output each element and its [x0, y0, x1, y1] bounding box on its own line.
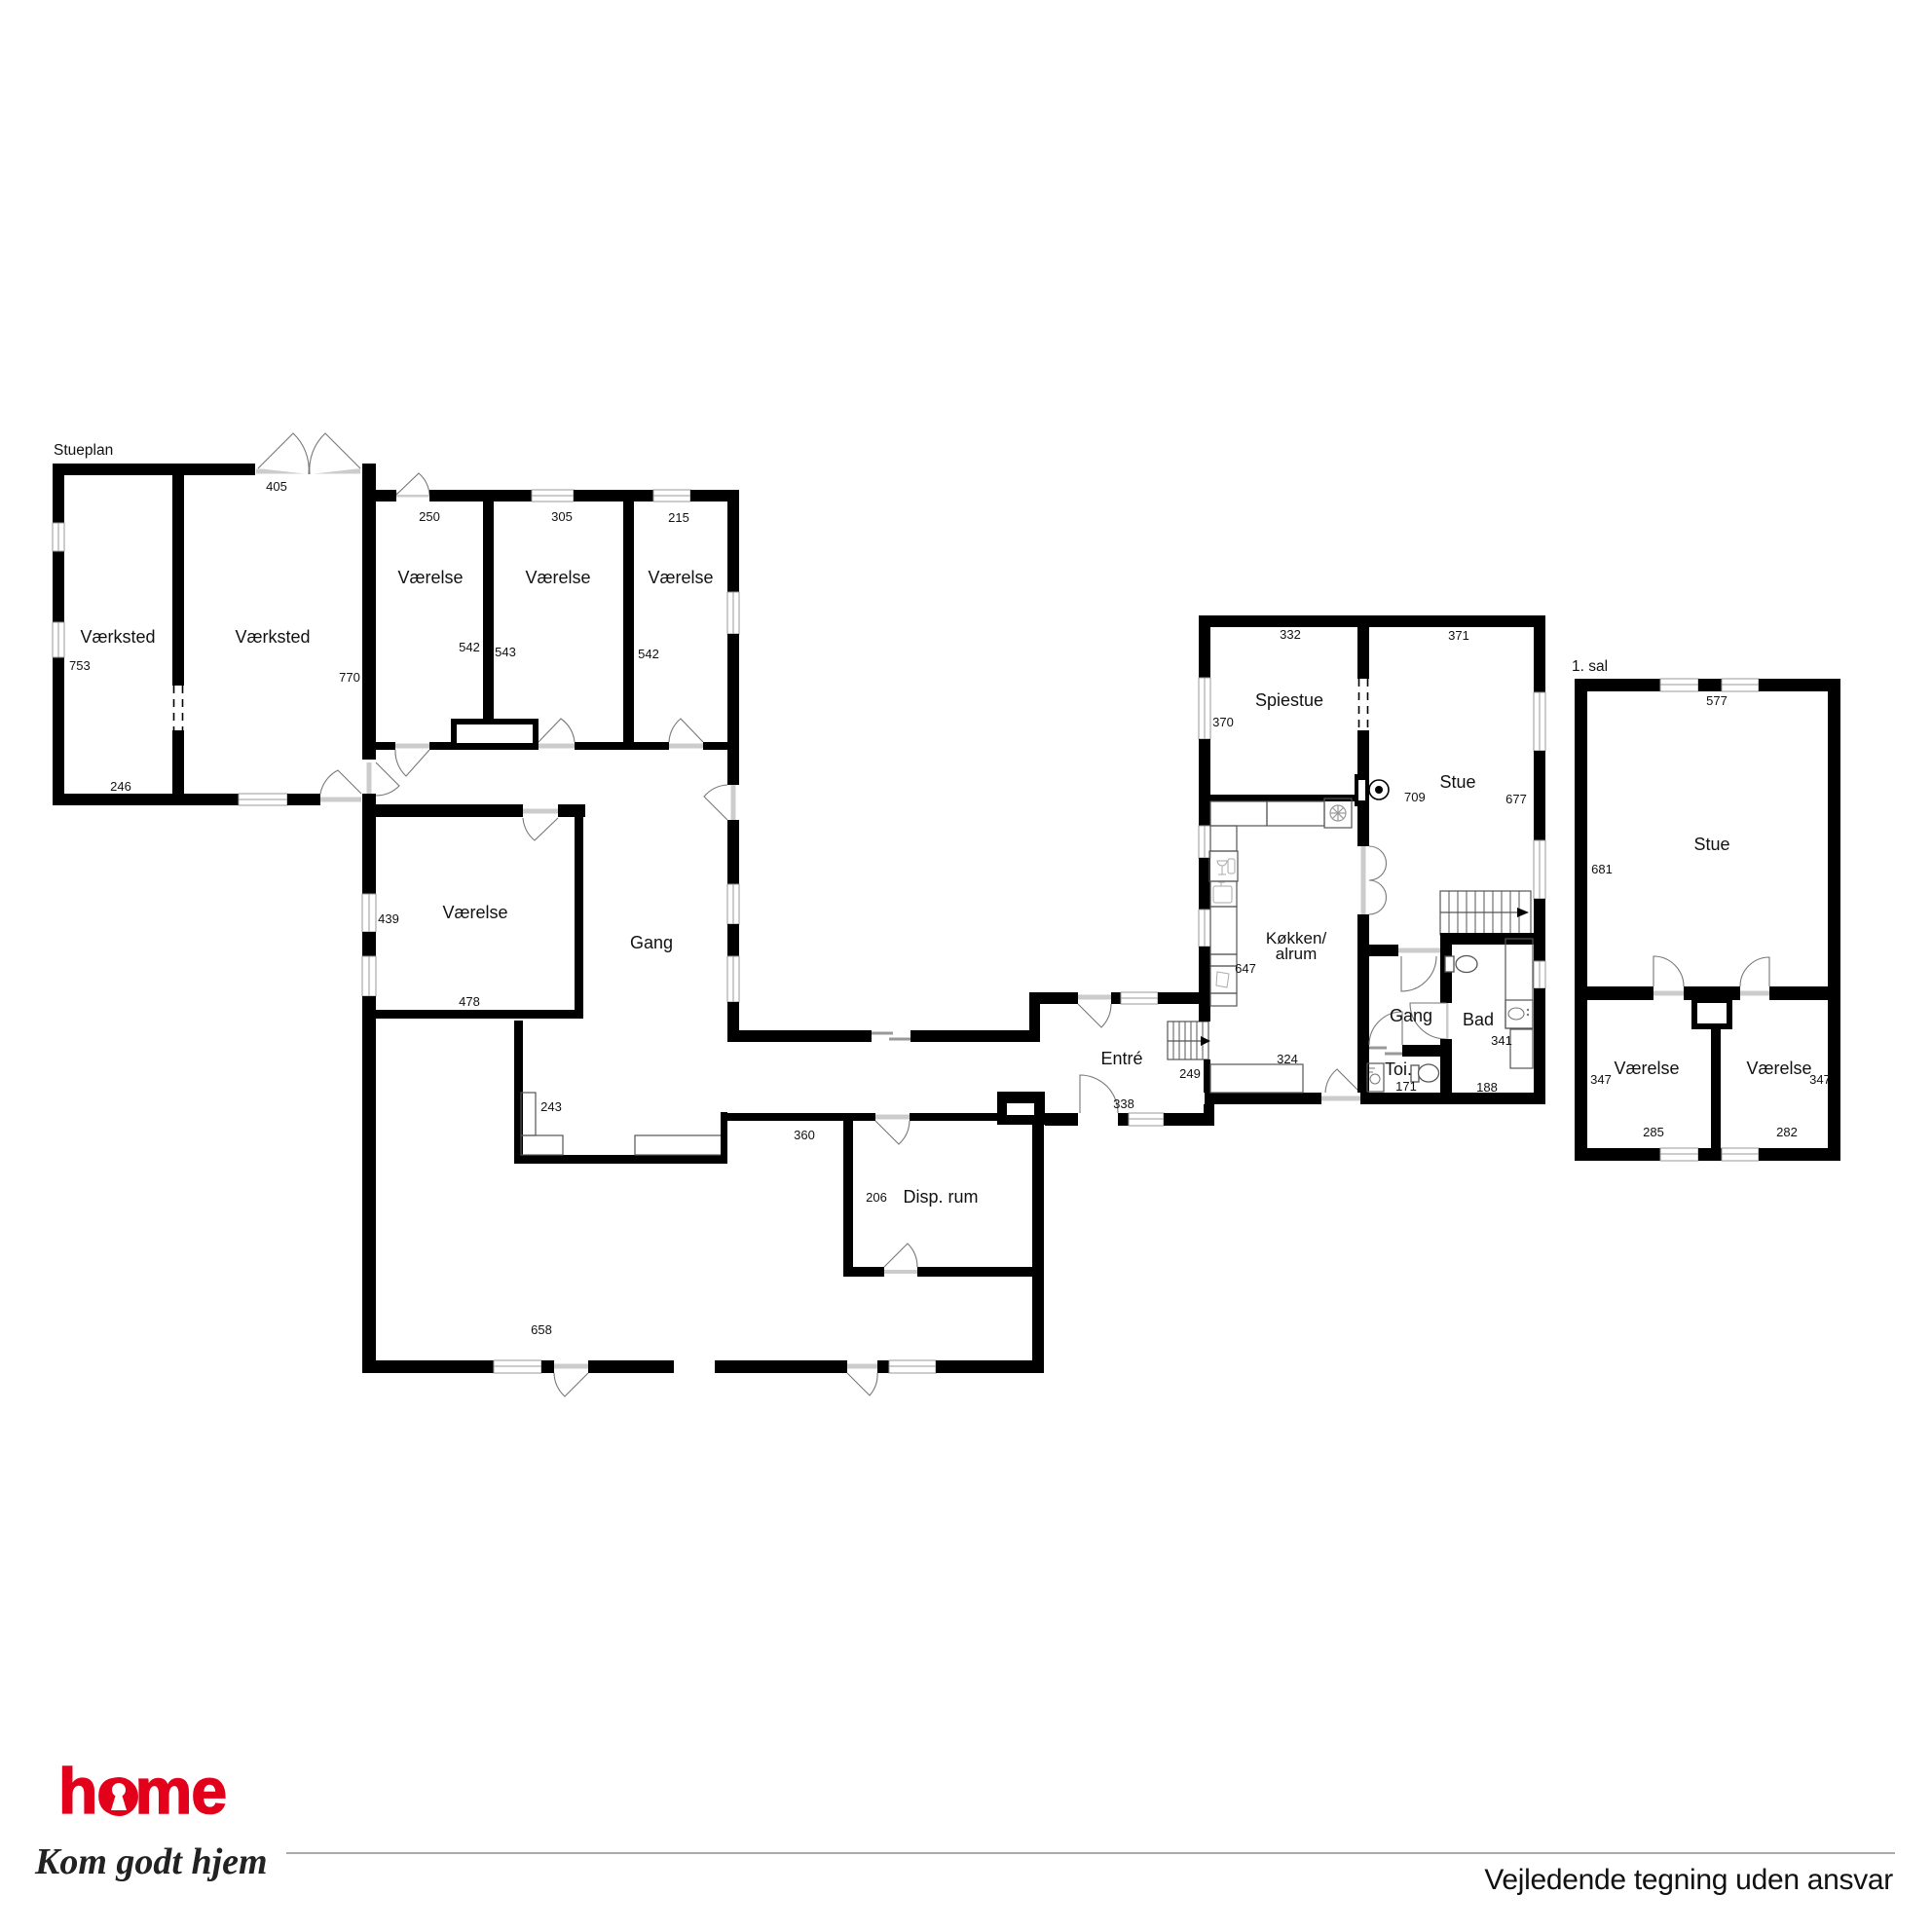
svg-text:542: 542 — [638, 647, 659, 661]
svg-text:188: 188 — [1476, 1080, 1498, 1095]
svg-text:206: 206 — [866, 1190, 887, 1205]
svg-text:439: 439 — [378, 911, 399, 926]
svg-text:Værelse: Værelse — [397, 568, 463, 587]
svg-text:246: 246 — [110, 779, 131, 794]
svg-text:753: 753 — [69, 658, 91, 673]
svg-text:215: 215 — [668, 510, 689, 525]
svg-text:Stue: Stue — [1693, 835, 1729, 854]
svg-text:647: 647 — [1235, 961, 1256, 976]
svg-text:Vejledende tegning uden ansvar: Vejledende tegning uden ansvar — [1484, 1864, 1893, 1896]
svg-text:324: 324 — [1277, 1052, 1298, 1066]
svg-text:249: 249 — [1179, 1066, 1201, 1081]
svg-text:Toi.: Toi. — [1385, 1059, 1412, 1079]
svg-text:Disp. rum: Disp. rum — [903, 1187, 978, 1207]
svg-text:405: 405 — [266, 479, 287, 494]
svg-text:577: 577 — [1706, 693, 1728, 708]
svg-text:709: 709 — [1404, 790, 1426, 804]
svg-text:770: 770 — [339, 670, 360, 685]
svg-text:Værelse: Værelse — [648, 568, 713, 587]
svg-text:681: 681 — [1591, 862, 1613, 876]
svg-text:282: 282 — [1776, 1125, 1798, 1139]
svg-text:home: home — [58, 1755, 226, 1827]
svg-text:347: 347 — [1809, 1072, 1831, 1087]
svg-text:Bad: Bad — [1463, 1010, 1494, 1029]
svg-text:alrum: alrum — [1276, 945, 1318, 963]
svg-text:171: 171 — [1395, 1079, 1417, 1094]
svg-text:Kom godt hjem: Kom godt hjem — [34, 1841, 268, 1882]
svg-text:Stueplan: Stueplan — [54, 442, 113, 459]
svg-text:677: 677 — [1505, 792, 1527, 806]
svg-text:371: 371 — [1448, 628, 1469, 643]
svg-text:338: 338 — [1113, 1096, 1134, 1111]
svg-text:360: 360 — [794, 1128, 815, 1142]
svg-text:542: 542 — [459, 640, 480, 654]
svg-text:Værelse: Værelse — [442, 903, 507, 922]
svg-text:250: 250 — [419, 509, 440, 524]
svg-text:543: 543 — [495, 645, 516, 659]
svg-text:478: 478 — [459, 994, 480, 1009]
svg-text:347: 347 — [1590, 1072, 1612, 1087]
svg-text:Gang: Gang — [630, 933, 673, 952]
svg-text:341: 341 — [1491, 1033, 1512, 1048]
svg-text:Værksted: Værksted — [235, 627, 310, 647]
svg-text:332: 332 — [1280, 627, 1301, 642]
svg-text:658: 658 — [531, 1322, 552, 1337]
svg-text:Entré: Entré — [1100, 1049, 1142, 1068]
svg-text:Værelse: Værelse — [1746, 1059, 1811, 1078]
svg-text:243: 243 — [540, 1099, 562, 1114]
svg-text:Værelse: Værelse — [1614, 1059, 1679, 1078]
svg-text:Spiestue: Spiestue — [1255, 690, 1323, 710]
svg-text:285: 285 — [1643, 1125, 1664, 1139]
svg-text:370: 370 — [1212, 715, 1234, 729]
svg-text:Stue: Stue — [1439, 772, 1475, 792]
svg-text:Gang: Gang — [1390, 1006, 1432, 1025]
svg-text:Værksted: Værksted — [80, 627, 155, 647]
svg-text:Værelse: Værelse — [525, 568, 590, 587]
svg-text:305: 305 — [551, 509, 573, 524]
svg-text:1. sal: 1. sal — [1572, 658, 1608, 675]
